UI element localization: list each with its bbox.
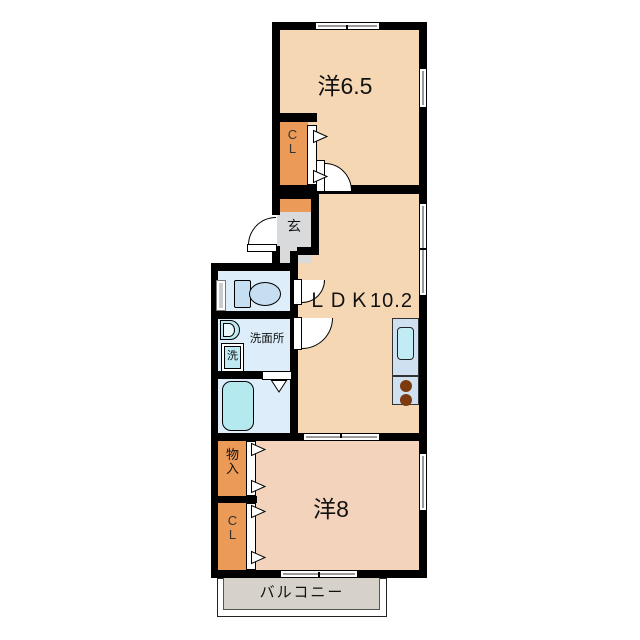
sliding-window-tick bbox=[318, 572, 320, 577]
room-ldk-upper bbox=[319, 194, 419, 254]
shoe-cabinet bbox=[277, 199, 311, 212]
closet-arrow-icon bbox=[313, 130, 328, 143]
wall bbox=[211, 311, 298, 319]
window-tick bbox=[420, 248, 426, 250]
kitchen-counter bbox=[392, 318, 419, 405]
door-leaf-washroom bbox=[293, 317, 302, 350]
closet-arrow-icon bbox=[313, 170, 328, 183]
window-glass-line bbox=[422, 71, 424, 105]
door-swing-entrance bbox=[248, 217, 276, 245]
window-tick bbox=[346, 25, 348, 30]
closet-arrow-icon bbox=[251, 551, 266, 564]
window-right-west65 bbox=[419, 68, 427, 108]
room-label-ldk: ＬＤＫ10.2 bbox=[302, 291, 418, 313]
closet-arrow-icon bbox=[251, 443, 266, 456]
door-bath-folding bbox=[262, 371, 292, 380]
door-leaf-entrance bbox=[247, 244, 277, 252]
kitchen-sink bbox=[397, 327, 414, 360]
closet-arrow-icon bbox=[251, 480, 266, 493]
window-glass-line bbox=[422, 456, 424, 508]
closet-arrow-icon bbox=[251, 505, 266, 518]
bathtub bbox=[222, 381, 254, 431]
door-leaf-toilet bbox=[293, 279, 302, 305]
room-label-closet-lower: C L bbox=[218, 514, 247, 542]
wall bbox=[211, 263, 298, 271]
room-label-west65: 洋6.5 bbox=[295, 74, 395, 99]
wall bbox=[311, 194, 319, 251]
room-label-washroom: 洗面所 bbox=[243, 333, 291, 345]
kitchen-divider bbox=[393, 375, 418, 377]
wall bbox=[211, 371, 266, 379]
sink-inner bbox=[223, 323, 235, 337]
floor-plan: 洗 洋6.5 C L 玄 ＬＤＫ10.2 洗面所 物 入 C L 洋8 バルコニ… bbox=[0, 0, 640, 640]
wall bbox=[297, 247, 319, 255]
room-label-closet-upper: C L bbox=[277, 128, 308, 156]
washing-machine-label: 洗 bbox=[224, 351, 241, 363]
sliding-door-tick bbox=[340, 433, 342, 438]
stove-burner-icon bbox=[400, 394, 412, 406]
wall bbox=[272, 113, 317, 122]
toilet-bowl bbox=[249, 282, 281, 306]
room-label-west8: 洋8 bbox=[281, 497, 381, 522]
folding-door-v-icon bbox=[271, 380, 287, 393]
stove-burner-icon bbox=[400, 380, 412, 392]
room-label-balcony: バルコニー bbox=[238, 585, 366, 601]
room-label-storage: 物 入 bbox=[218, 448, 247, 476]
room-label-entrance: 玄 bbox=[277, 219, 311, 234]
window-toilet bbox=[216, 280, 226, 311]
window-right-west8 bbox=[419, 453, 427, 511]
